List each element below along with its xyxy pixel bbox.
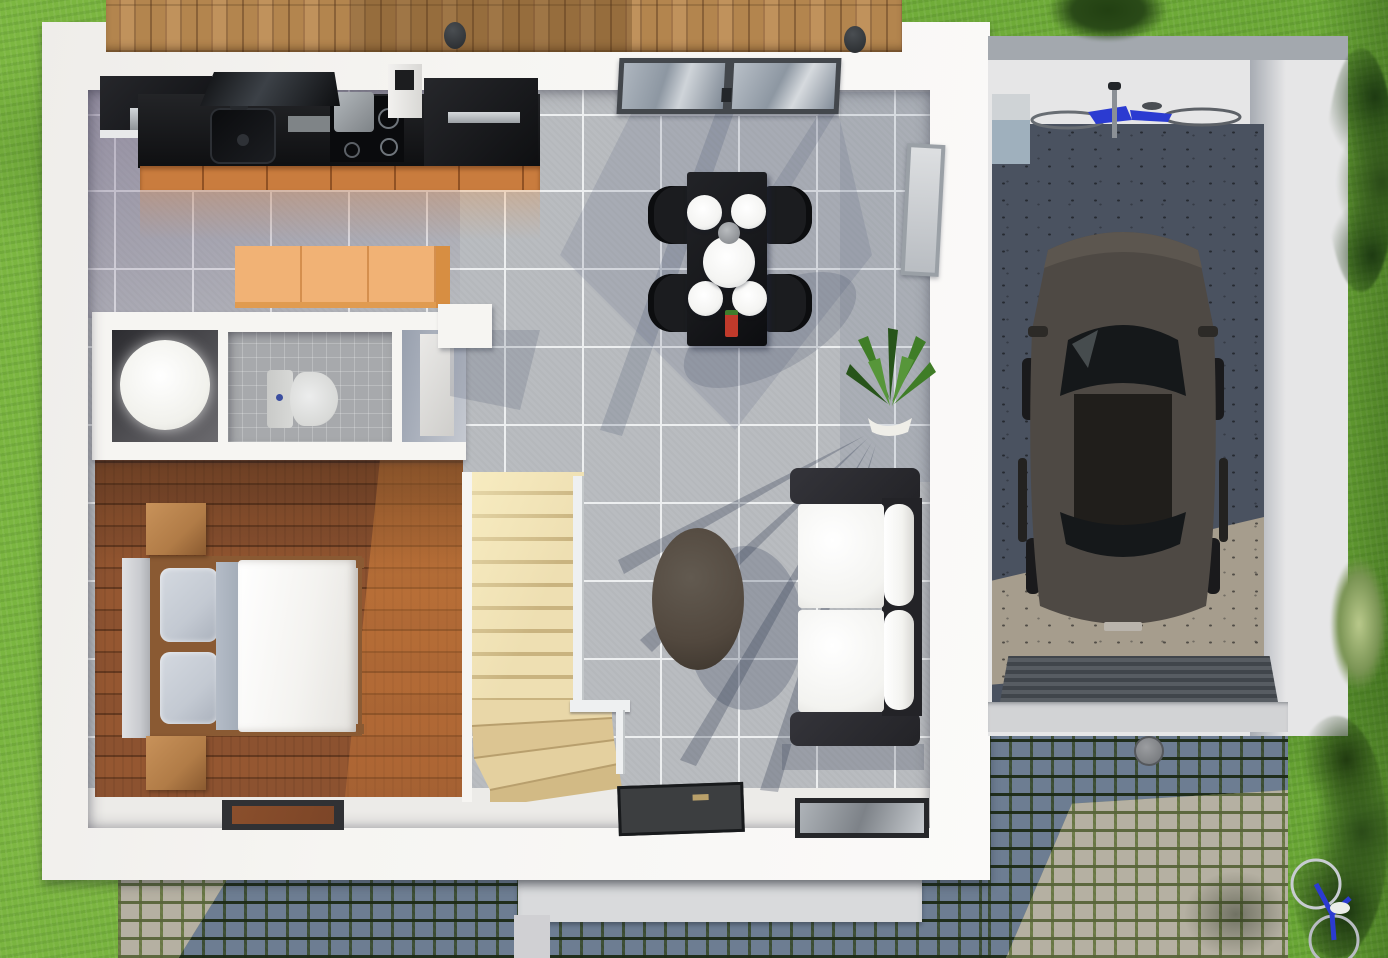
cooking-pot — [334, 92, 374, 132]
stair-left-wall — [462, 472, 472, 802]
stair-railing-vertical — [573, 476, 584, 712]
plate-1 — [687, 195, 722, 230]
sofa-armrest-bottom — [790, 712, 920, 746]
drain-cap — [1134, 736, 1164, 766]
bed-pillow-top — [160, 568, 218, 642]
shower-room — [112, 330, 218, 442]
entry-mat — [617, 782, 745, 836]
garage-storage-box — [992, 94, 1030, 164]
right-window-panel — [905, 147, 941, 272]
burner-3 — [344, 142, 360, 158]
dining-chair-top-left — [648, 186, 692, 244]
entry-mat-handle — [693, 794, 709, 801]
bike-frame-left — [1088, 106, 1132, 124]
coffee-table — [652, 528, 744, 670]
wooden-deck — [106, 0, 902, 52]
houseplant — [838, 322, 942, 444]
bike-grip — [1108, 82, 1121, 90]
sideboard-side-face — [436, 246, 450, 308]
round-shower — [120, 340, 210, 430]
counter-wood-strip — [140, 166, 540, 190]
kitchen-sink — [210, 108, 276, 164]
cobblestone-sunlit-wedge — [118, 878, 228, 958]
bathroom-door-leaf — [420, 334, 454, 436]
refrigerator — [424, 78, 538, 168]
dining-chair-bottom-right — [764, 274, 812, 332]
kitchen-warm-reflection — [140, 188, 540, 240]
plant-leaves — [846, 328, 936, 406]
bed-headboard — [122, 558, 152, 738]
driveway — [988, 731, 1288, 958]
bedroom-door-mat — [222, 800, 344, 830]
bed-post-top — [356, 558, 364, 568]
bed-pillow-bottom — [160, 652, 218, 724]
sideboard-cabinet — [235, 246, 450, 308]
dining-chair-bottom-left — [648, 274, 692, 332]
car-mirror-left — [1028, 326, 1048, 337]
bike-rear-wheel — [1164, 109, 1240, 125]
front-path — [514, 915, 550, 958]
toilet-flush-button — [276, 394, 283, 401]
deck-dark-section — [350, 0, 632, 52]
nightstand-top — [146, 503, 206, 555]
bike-handlebar — [1112, 86, 1117, 138]
tree-top-right — [1326, 48, 1388, 292]
wc-room — [228, 332, 392, 442]
garage-threshold — [988, 702, 1288, 732]
car-running-board-right — [1219, 458, 1228, 542]
plant-pot — [868, 418, 912, 436]
bed-duvet — [238, 560, 358, 732]
floor-plan-scene — [0, 0, 1388, 958]
deck-knob-left — [444, 22, 466, 49]
nightstand-bottom — [146, 736, 206, 790]
sink-drain — [237, 134, 249, 146]
garage-bicycle — [1030, 80, 1245, 150]
door-jamb-block — [438, 304, 492, 348]
stair-winders — [472, 700, 624, 802]
refrigerator-handle — [448, 112, 520, 123]
staircase — [462, 472, 624, 802]
condiment-bottle — [725, 310, 738, 337]
window-glass-left — [622, 63, 725, 109]
toilet-bowl — [290, 372, 338, 426]
dining-chair-top-right — [764, 186, 812, 244]
bathroom-block — [92, 312, 466, 460]
car-mirror-right — [1198, 326, 1218, 337]
floor-glass-panel — [795, 798, 929, 838]
bush-light — [1330, 556, 1388, 692]
sofa-seat-cushion-1 — [798, 504, 884, 608]
stair-railing-post — [616, 710, 625, 774]
deck-knob-right — [844, 26, 866, 53]
sofa-seat-cushion-2 — [798, 610, 884, 712]
stair-flight — [472, 472, 584, 704]
table-bowl — [718, 222, 740, 244]
lawn-bike-wheel-1 — [1292, 860, 1340, 908]
bike-frame-right — [1130, 110, 1172, 122]
right-wall-window — [901, 143, 946, 277]
plate-3 — [688, 281, 723, 316]
sofa-back-cushion-1 — [884, 504, 914, 606]
car-license-plate — [1104, 622, 1142, 631]
window-glass-right — [732, 63, 836, 109]
vent-chimney — [388, 64, 422, 118]
dining-top-window — [617, 58, 842, 114]
car-roof — [1074, 394, 1172, 536]
car-running-board-left — [1018, 458, 1027, 542]
burner-2 — [380, 138, 398, 156]
counter-tray — [288, 116, 330, 132]
front-step — [518, 878, 922, 922]
window-handle — [721, 88, 732, 102]
driveway-bush-shadow — [1184, 871, 1288, 958]
stair-sun-streak — [472, 472, 584, 704]
bedroom-door-mat-core — [232, 806, 334, 824]
double-bed — [150, 556, 362, 736]
lawn-bike-saddle — [1330, 902, 1350, 914]
range-hood-panel — [200, 72, 340, 106]
garage-entrance-mat — [1000, 656, 1278, 702]
sofa-back-cushion-2 — [884, 610, 914, 710]
lawn-bicycle — [1288, 852, 1364, 958]
garage-top-edge — [988, 36, 1348, 60]
car — [1018, 208, 1228, 653]
bike-saddle — [1142, 102, 1162, 110]
chimney-duct-hole — [395, 70, 414, 90]
sofa — [790, 468, 922, 746]
bed-post-bottom — [356, 724, 364, 734]
